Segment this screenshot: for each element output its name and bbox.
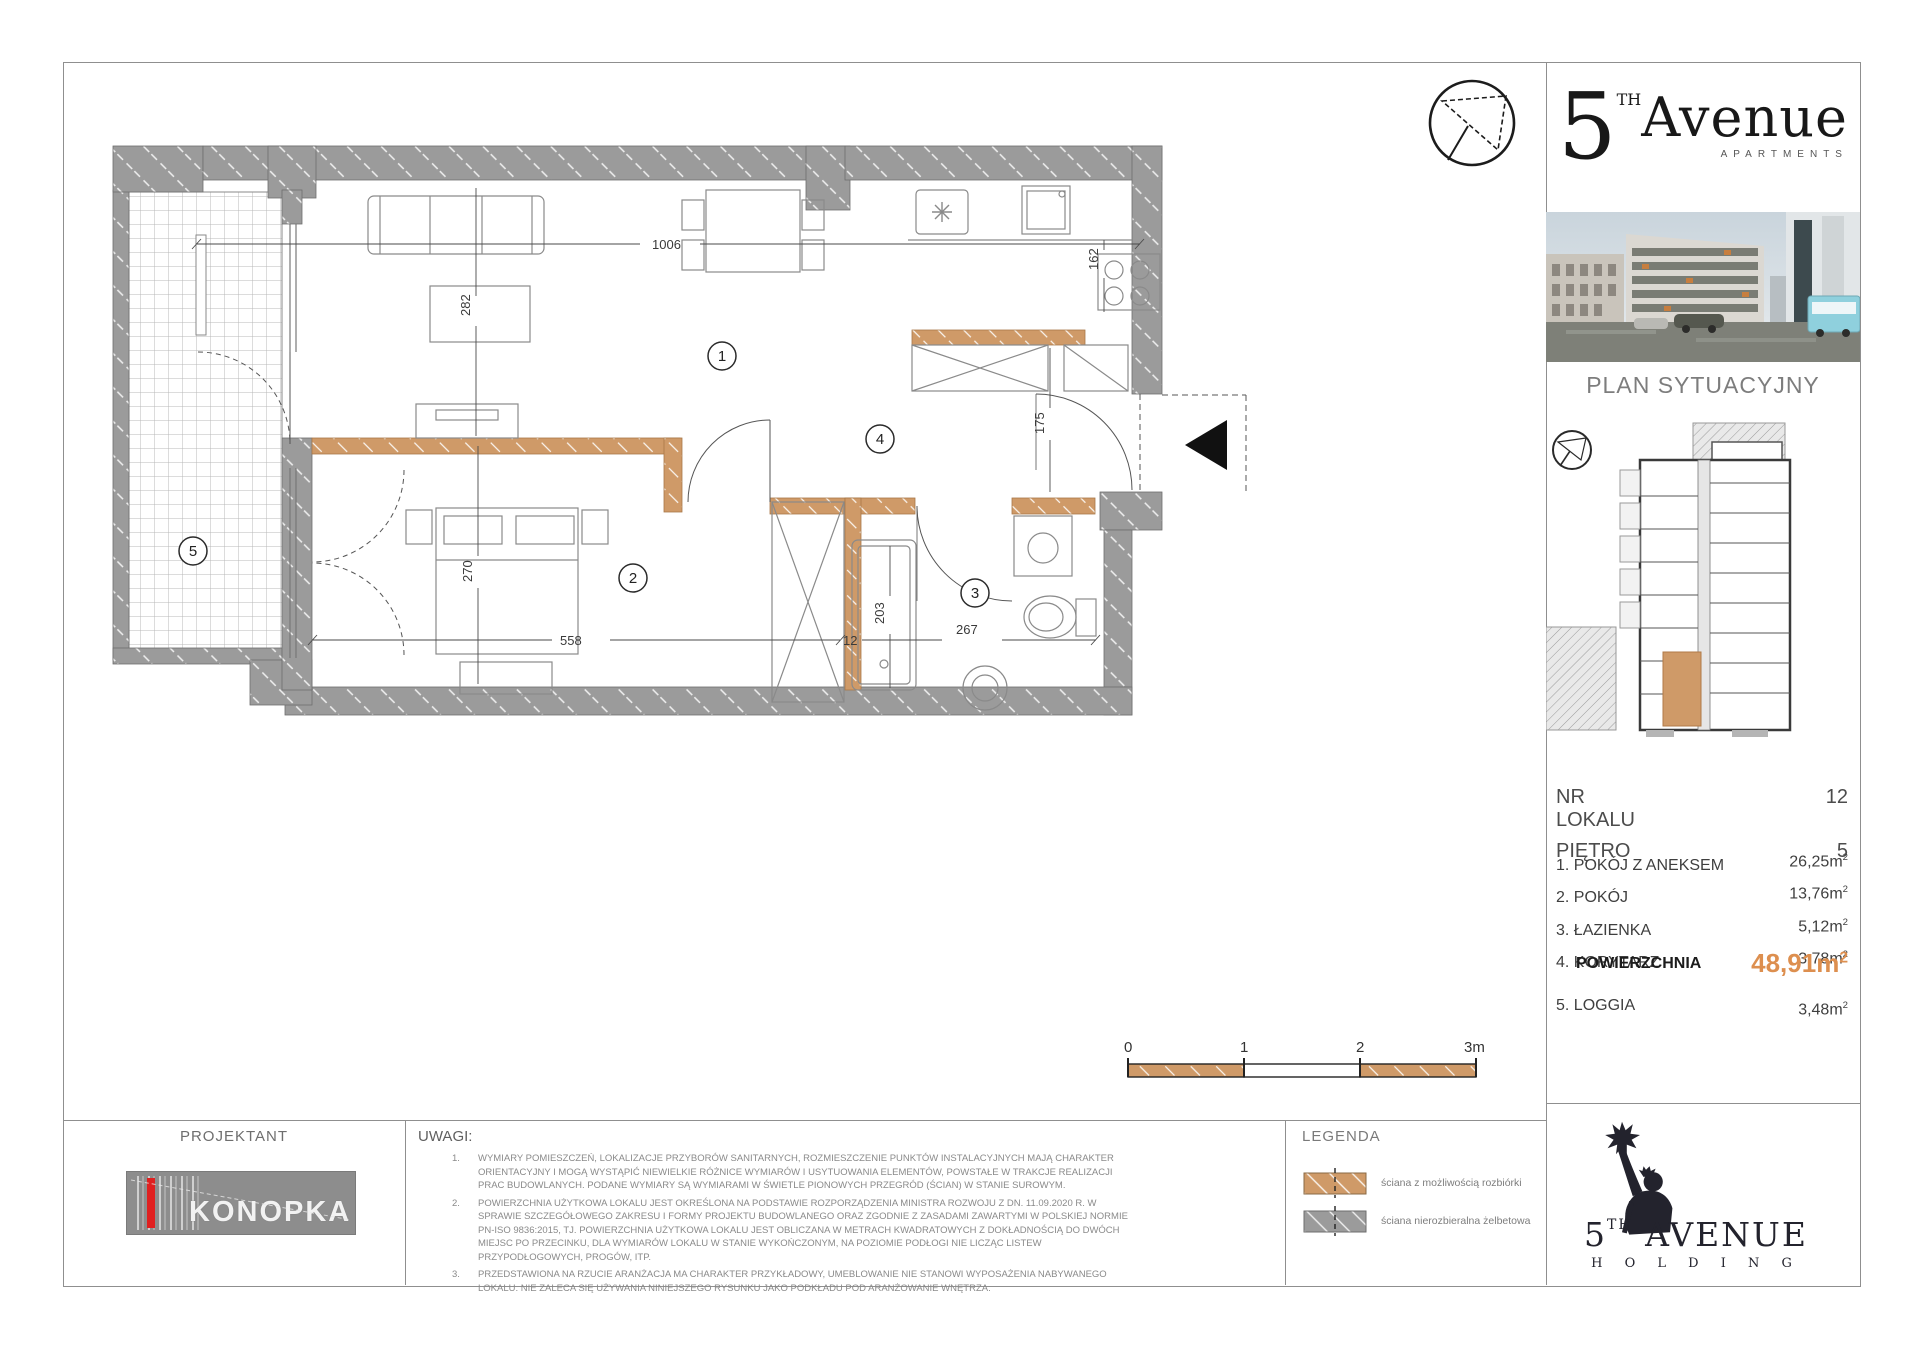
scale-2: 2 [1356, 1039, 1364, 1056]
loggia-row: 5. LOGGIA 3,48m2 [1556, 992, 1848, 1024]
note-text: POWIERZCHNIA UŻYTKOWA LOKALU JEST OKREŚL… [478, 1197, 1128, 1265]
footer-divider [63, 1120, 1546, 1121]
dim-162: 162 [1086, 248, 1101, 270]
loggia [113, 190, 285, 664]
dim-282: 282 [458, 294, 473, 316]
holding-name: AVENUE [1633, 1215, 1808, 1254]
notes-list: 1. WYMIARY POMIESZCZEŃ, LOKALIZACJE PRZY… [452, 1152, 1128, 1299]
room-area: 5,12m2 [1798, 909, 1848, 941]
room-area: 13,76m2 [1789, 876, 1848, 908]
loggia-label: 5. LOGGIA [1556, 992, 1635, 1024]
scale-0: 0 [1124, 1039, 1132, 1056]
note-item: 2. POWIERZCHNIA UŻYTKOWA LOKALU JEST OKR… [452, 1197, 1128, 1265]
scale-bar: 0 1 2 3m [1124, 1039, 1485, 1077]
dim-558: 558 [560, 633, 582, 648]
building-photo [1546, 212, 1860, 362]
room-3-label: 3 [971, 585, 979, 602]
brand-five: 5 [1558, 84, 1617, 170]
uwagi-title: UWAGI: [418, 1128, 472, 1145]
legend-cell-divider [1285, 1120, 1286, 1285]
legend-item-orange: ściana z możliwością rozbiórki [1303, 1168, 1522, 1198]
note-number: 1. [452, 1152, 478, 1193]
legend-title: LEGENDA [1302, 1128, 1381, 1145]
note-number: 2. [452, 1197, 478, 1265]
north-compass-icon [1430, 81, 1514, 165]
scale-1: 1 [1240, 1039, 1248, 1056]
legend-label-orange: ściana z możliwością rozbiórki [1381, 1177, 1522, 1189]
room-label: 1. POKÓJ Z ANEKSEM [1556, 852, 1724, 884]
holding-th: TH [1607, 1217, 1633, 1233]
note-item: 3. PRZEDSTAWIONA NA RZUCIE ARANŻACJA MA … [452, 1268, 1128, 1295]
room-label: 3. ŁAZIENKA [1556, 917, 1651, 949]
site-balconies [1620, 470, 1640, 628]
dim-1006: 1006 [652, 237, 681, 252]
unit-number-row: NR LOKALU 12 [1556, 786, 1848, 832]
holding-five: 5 [1584, 1215, 1607, 1254]
room-label: 2. POKÓJ [1556, 884, 1628, 916]
siteplan-title: PLAN SYTUACYJNY [1546, 372, 1860, 399]
dim-270: 270 [460, 560, 475, 582]
dim-12: 12 [843, 633, 857, 648]
room-1-label: 1 [718, 348, 726, 365]
studio-logo: PROART KONOPKA [127, 1172, 355, 1234]
room-area: 26,25m2 [1789, 844, 1848, 876]
brand-subtitle: APARTMENTS [1641, 149, 1848, 160]
studio-logo-scratch [127, 1172, 355, 1234]
site-hatch-block-left [1546, 627, 1616, 730]
dim-267: 267 [956, 622, 978, 637]
total-area-row: POWIERZCHNIA 48,91m2 [1556, 948, 1848, 979]
holding-logo: 5TH AVENUE H O L D I N G [1546, 1103, 1860, 1285]
brand-name: Avenue [1641, 86, 1848, 149]
site-highlighted-unit [1663, 652, 1701, 726]
room-4-label: 4 [876, 431, 884, 448]
legend-item-gray: ściana nierozbieralna żelbetowa [1303, 1206, 1530, 1236]
brand-th: TH [1617, 90, 1642, 109]
floor-plan-drawing: 1006 282 162 175 270 558 12 203 267 1 2 … [63, 62, 1546, 1120]
unit-number-value: 12 [1826, 786, 1848, 832]
holding-subtitle: H O L D I N G [1546, 1256, 1846, 1271]
holding-wordmark: 5TH AVENUE H O L D I N G [1546, 1215, 1846, 1271]
unit-number-label: NR LOKALU [1556, 786, 1635, 832]
room-5-label: 5 [189, 543, 197, 560]
site-plan [1546, 415, 1860, 737]
dim-203: 203 [872, 602, 887, 624]
legend-swatch-orange [1303, 1168, 1369, 1198]
note-item: 1. WYMIARY POMIESZCZEŃ, LOKALIZACJE PRZY… [452, 1152, 1128, 1193]
dim-175: 175 [1032, 412, 1047, 434]
total-area-value: 48,91m2 [1751, 948, 1848, 979]
note-text: PRZEDSTAWIONA NA RZUCIE ARANŻACJA MA CHA… [478, 1268, 1128, 1295]
note-number: 3. [452, 1268, 478, 1295]
projektant-label: PROJEKTANT [63, 1128, 405, 1145]
entrance-arrow-icon [1185, 420, 1227, 470]
total-area-label: POWIERZCHNIA [1556, 955, 1701, 973]
legend-swatch-gray [1303, 1206, 1369, 1236]
brand-logo: 5 TH Avenue APARTMENTS [1546, 84, 1860, 204]
scale-3m: 3m [1464, 1039, 1485, 1056]
legend-label-gray: ściana nierozbieralna żelbetowa [1381, 1215, 1530, 1227]
projektant-cell-divider [405, 1120, 406, 1285]
photo-car [1674, 314, 1724, 328]
room-2-label: 2 [629, 570, 637, 587]
note-text: WYMIARY POMIESZCZEŃ, LOKALIZACJE PRZYBOR… [478, 1152, 1128, 1193]
loggia-area: 3,48m2 [1798, 992, 1848, 1024]
